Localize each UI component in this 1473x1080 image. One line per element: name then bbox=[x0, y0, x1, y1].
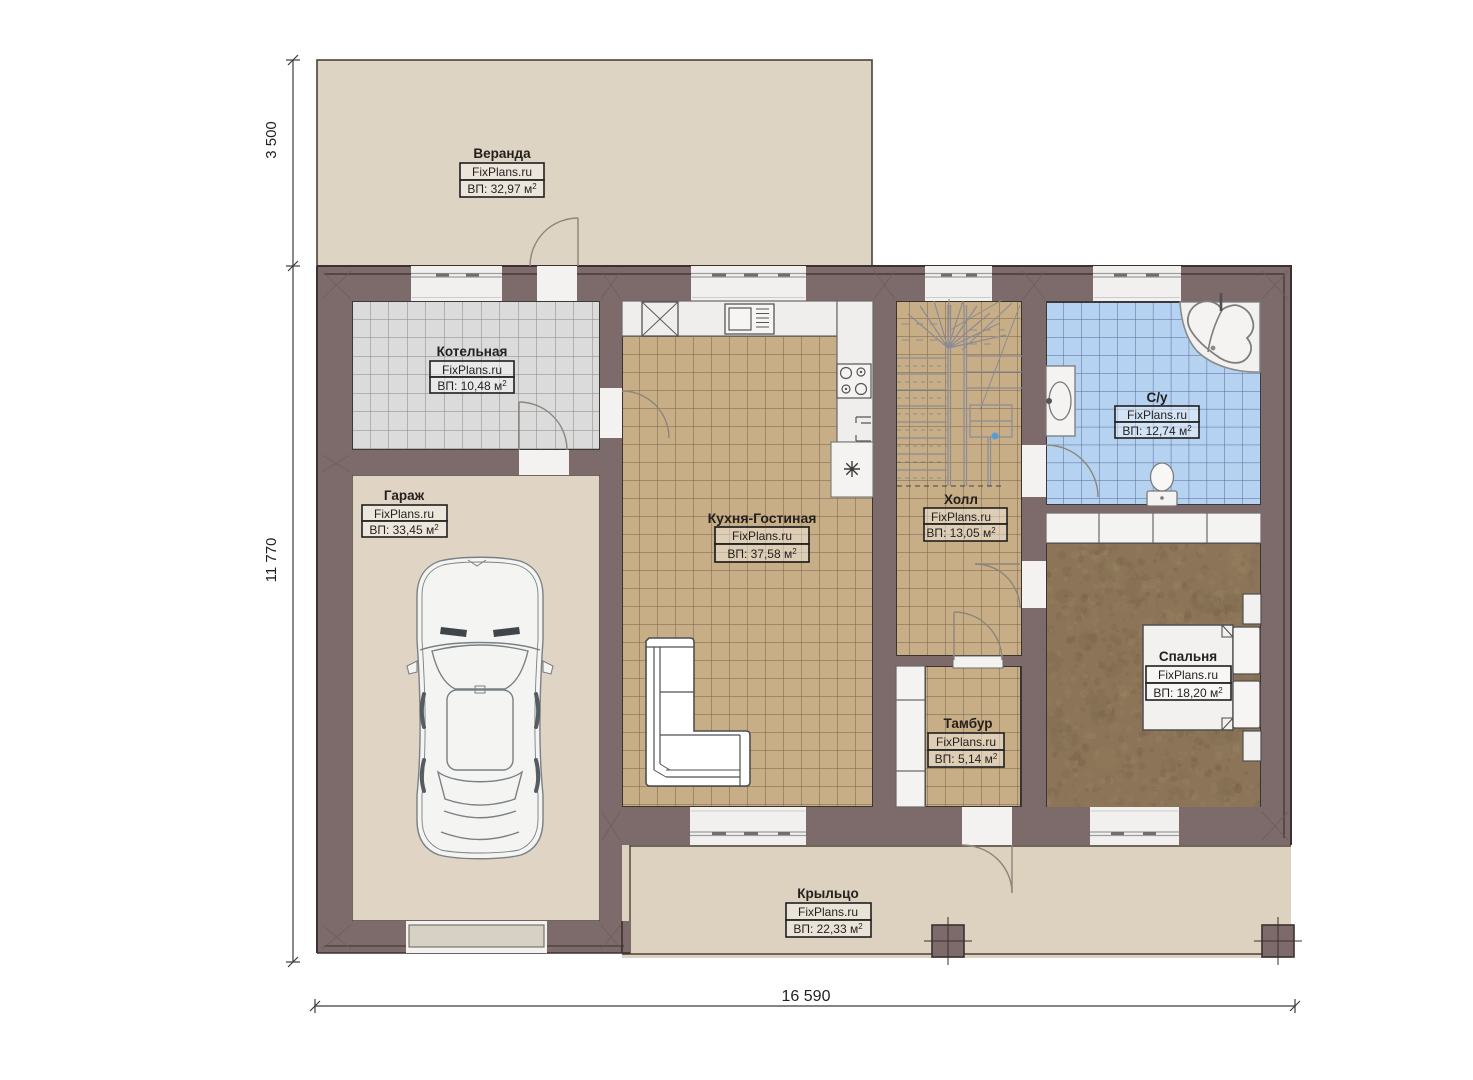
svg-text:FixPlans.ru: FixPlans.ru bbox=[931, 510, 991, 524]
svg-text:FixPlans.ru: FixPlans.ru bbox=[936, 735, 996, 749]
svg-text:ВП: 18,20 м2: ВП: 18,20 м2 bbox=[1153, 686, 1223, 700]
svg-text:16 590: 16 590 bbox=[782, 988, 831, 1005]
svg-text:ВП: 12,74 м2: ВП: 12,74 м2 bbox=[1122, 424, 1192, 438]
svg-text:ВП: 22,33 м2: ВП: 22,33 м2 bbox=[793, 922, 863, 936]
svg-text:FixPlans.ru: FixPlans.ru bbox=[732, 529, 792, 543]
svg-text:ВП: 32,97 м2: ВП: 32,97 м2 bbox=[467, 182, 537, 196]
svg-text:Спальня: Спальня bbox=[1159, 649, 1217, 664]
svg-text:Веранда: Веранда bbox=[473, 146, 531, 161]
svg-text:Котельная: Котельная bbox=[437, 344, 508, 359]
svg-text:FixPlans.ru: FixPlans.ru bbox=[798, 905, 858, 919]
svg-text:Холл: Холл bbox=[944, 492, 978, 507]
svg-text:FixPlans.ru: FixPlans.ru bbox=[1158, 668, 1218, 682]
svg-text:ВП: 13,05 м2: ВП: 13,05 м2 bbox=[926, 526, 996, 540]
svg-text:3 500: 3 500 bbox=[263, 121, 280, 159]
svg-text:FixPlans.ru: FixPlans.ru bbox=[472, 165, 532, 179]
svg-text:ВП: 33,45 м2: ВП: 33,45 м2 bbox=[369, 523, 439, 537]
svg-text:ВП: 37,58 м2: ВП: 37,58 м2 bbox=[727, 547, 797, 561]
svg-text:Крыльцо: Крыльцо bbox=[797, 886, 858, 901]
svg-text:FixPlans.ru: FixPlans.ru bbox=[1127, 408, 1187, 422]
svg-text:Гараж: Гараж bbox=[384, 488, 425, 503]
svg-text:Кухня-Гостиная: Кухня-Гостиная bbox=[708, 510, 817, 526]
svg-text:ВП: 10,48 м2: ВП: 10,48 м2 bbox=[437, 379, 507, 393]
svg-text:Тамбур: Тамбур bbox=[944, 716, 993, 731]
svg-text:FixPlans.ru: FixPlans.ru bbox=[442, 363, 502, 377]
svg-text:11 770: 11 770 bbox=[263, 538, 280, 583]
svg-text:ВП: 5,14 м2: ВП: 5,14 м2 bbox=[935, 752, 998, 766]
svg-text:С/у: С/у bbox=[1146, 390, 1168, 405]
svg-text:FixPlans.ru: FixPlans.ru bbox=[374, 507, 434, 521]
